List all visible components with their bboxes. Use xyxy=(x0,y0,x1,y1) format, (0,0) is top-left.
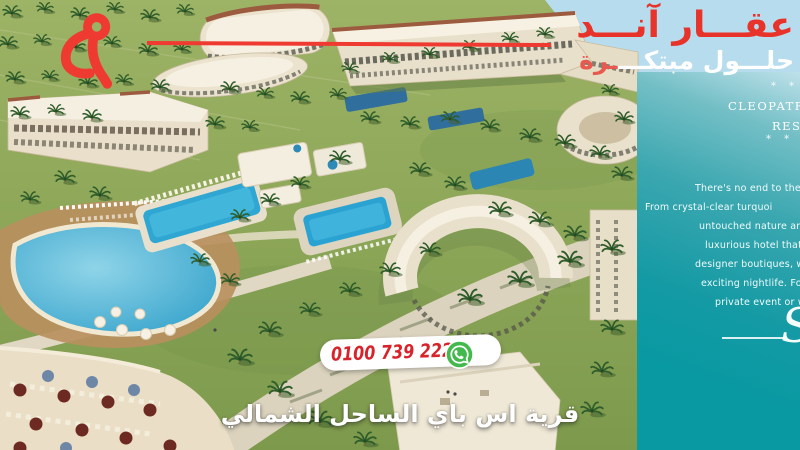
description-line: untouched nature and xyxy=(699,217,800,236)
brand-tagline-main: حلـــول مبتكـــ xyxy=(618,46,794,75)
description-line: From crystal-clear turquoi xyxy=(645,198,800,217)
brand-tagline-accent: ـرة xyxy=(579,46,618,75)
resort-title-line2: RESORT xyxy=(772,119,800,133)
description-line: exciting nightlife. For a xyxy=(701,274,800,293)
brand-logo-icon xyxy=(57,6,115,96)
resort-info-panel: * * * CLEOPATRA RESORT * * * There's no … xyxy=(637,72,800,450)
description-line: luxurious hotel that o xyxy=(705,236,800,255)
resort-title-line1: CLEOPATRA xyxy=(728,99,800,113)
whatsapp-icon[interactable] xyxy=(444,339,475,370)
description-line: designer boutiques, wo xyxy=(695,255,800,274)
brand-name-arabic: عقـــار آنـــد xyxy=(576,6,794,46)
brand-lockup: عقـــار آنـــد حلـــول مبتكــــرة xyxy=(576,6,794,74)
description-line: There's no end to the fa xyxy=(695,179,800,198)
stars-ornament-top: * * * xyxy=(771,81,800,92)
signature-initial: S xyxy=(781,302,800,350)
ad-banner: عقـــار آنـــد حلـــول مبتكــــرة * * * … xyxy=(0,0,800,450)
signature-underline xyxy=(722,337,783,339)
project-title-arabic: قرية اس باي الساحل الشمالي xyxy=(0,400,800,428)
brand-tagline-arabic: حلـــول مبتكــــرة xyxy=(576,47,794,75)
stars-ornament-bottom: * * * xyxy=(766,134,800,145)
resort-description: There's no end to the fa From crystal-cl… xyxy=(637,179,800,312)
